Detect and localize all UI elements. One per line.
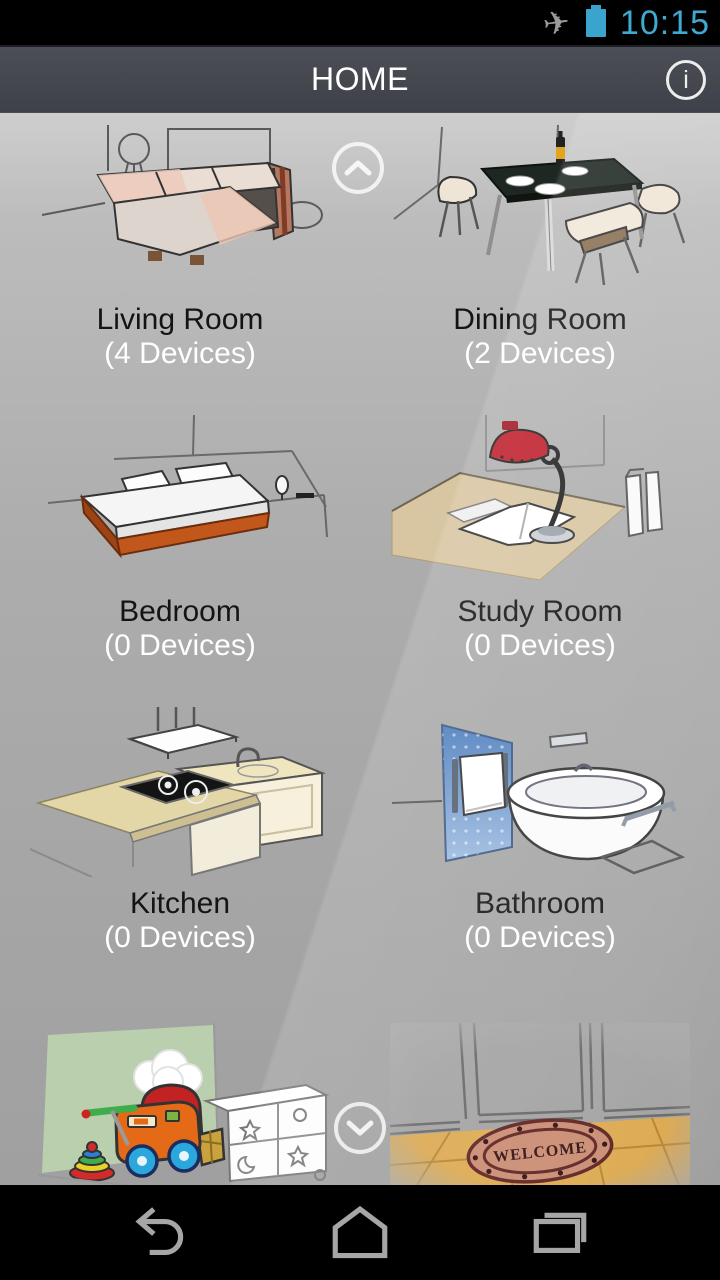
room-name: Bedroom (119, 595, 241, 629)
room-tile-entrance[interactable]: WELCOME (360, 1013, 720, 1185)
room-device-count: (2 Devices) (464, 337, 616, 371)
status-bar: ✈ 10:15 (0, 0, 720, 45)
room-name: Kitchen (130, 887, 230, 921)
room-grid: Living Room (4 Devices) (0, 113, 720, 1185)
room-tile-bedroom[interactable]: Bedroom (0 Devices) (0, 405, 360, 697)
status-time: 10:15 (620, 6, 710, 40)
chevron-up-icon (343, 158, 373, 178)
room-name: Study Room (457, 595, 622, 629)
study-room-illustration (390, 415, 690, 585)
page-title: HOME (0, 61, 720, 98)
home-button[interactable] (327, 1203, 393, 1263)
room-tile-study-room[interactable]: Study Room (0 Devices) (360, 405, 720, 697)
room-tile-kitchen[interactable]: Kitchen (0 Devices) (0, 697, 360, 989)
room-name: Dining Room (453, 303, 626, 337)
room-tile-playroom[interactable] (0, 1013, 360, 1185)
room-device-count: (0 Devices) (104, 921, 256, 955)
recents-button[interactable] (527, 1203, 593, 1263)
info-icon: i (683, 68, 689, 93)
rooms-grid: Living Room (4 Devices) (0, 113, 720, 1185)
dining-room-illustration (390, 123, 690, 293)
room-tile-bathroom[interactable]: Bathroom (0 Devices) (360, 697, 720, 989)
recents-icon (527, 1204, 593, 1262)
playroom-illustration (30, 1023, 330, 1185)
action-bar: HOME i (0, 45, 720, 113)
room-device-count: (0 Devices) (464, 629, 616, 663)
battery-icon (586, 9, 606, 37)
room-device-count: (0 Devices) (104, 629, 256, 663)
android-screen: ✈ 10:15 HOME i (0, 0, 720, 1280)
room-tile-dining-room[interactable]: Dining Room (2 Devices) (360, 113, 720, 405)
back-button[interactable] (127, 1203, 193, 1263)
kitchen-illustration (30, 707, 330, 877)
home-icon (327, 1204, 393, 1262)
living-room-illustration (30, 123, 330, 293)
room-device-count: (0 Devices) (464, 921, 616, 955)
scroll-down-button[interactable] (334, 1102, 386, 1154)
airplane-mode-icon: ✈ (541, 5, 572, 40)
back-icon (127, 1204, 193, 1262)
bathroom-illustration (390, 707, 690, 877)
bedroom-illustration (30, 415, 330, 585)
navigation-bar (0, 1185, 720, 1280)
entrance-illustration: WELCOME (390, 1023, 690, 1185)
room-device-count: (4 Devices) (104, 337, 256, 371)
room-name: Bathroom (475, 887, 605, 921)
scroll-up-button[interactable] (332, 142, 384, 194)
chevron-down-icon (345, 1118, 375, 1138)
room-tile-living-room[interactable]: Living Room (4 Devices) (0, 113, 360, 405)
info-button[interactable]: i (666, 60, 706, 100)
room-name: Living Room (97, 303, 264, 337)
